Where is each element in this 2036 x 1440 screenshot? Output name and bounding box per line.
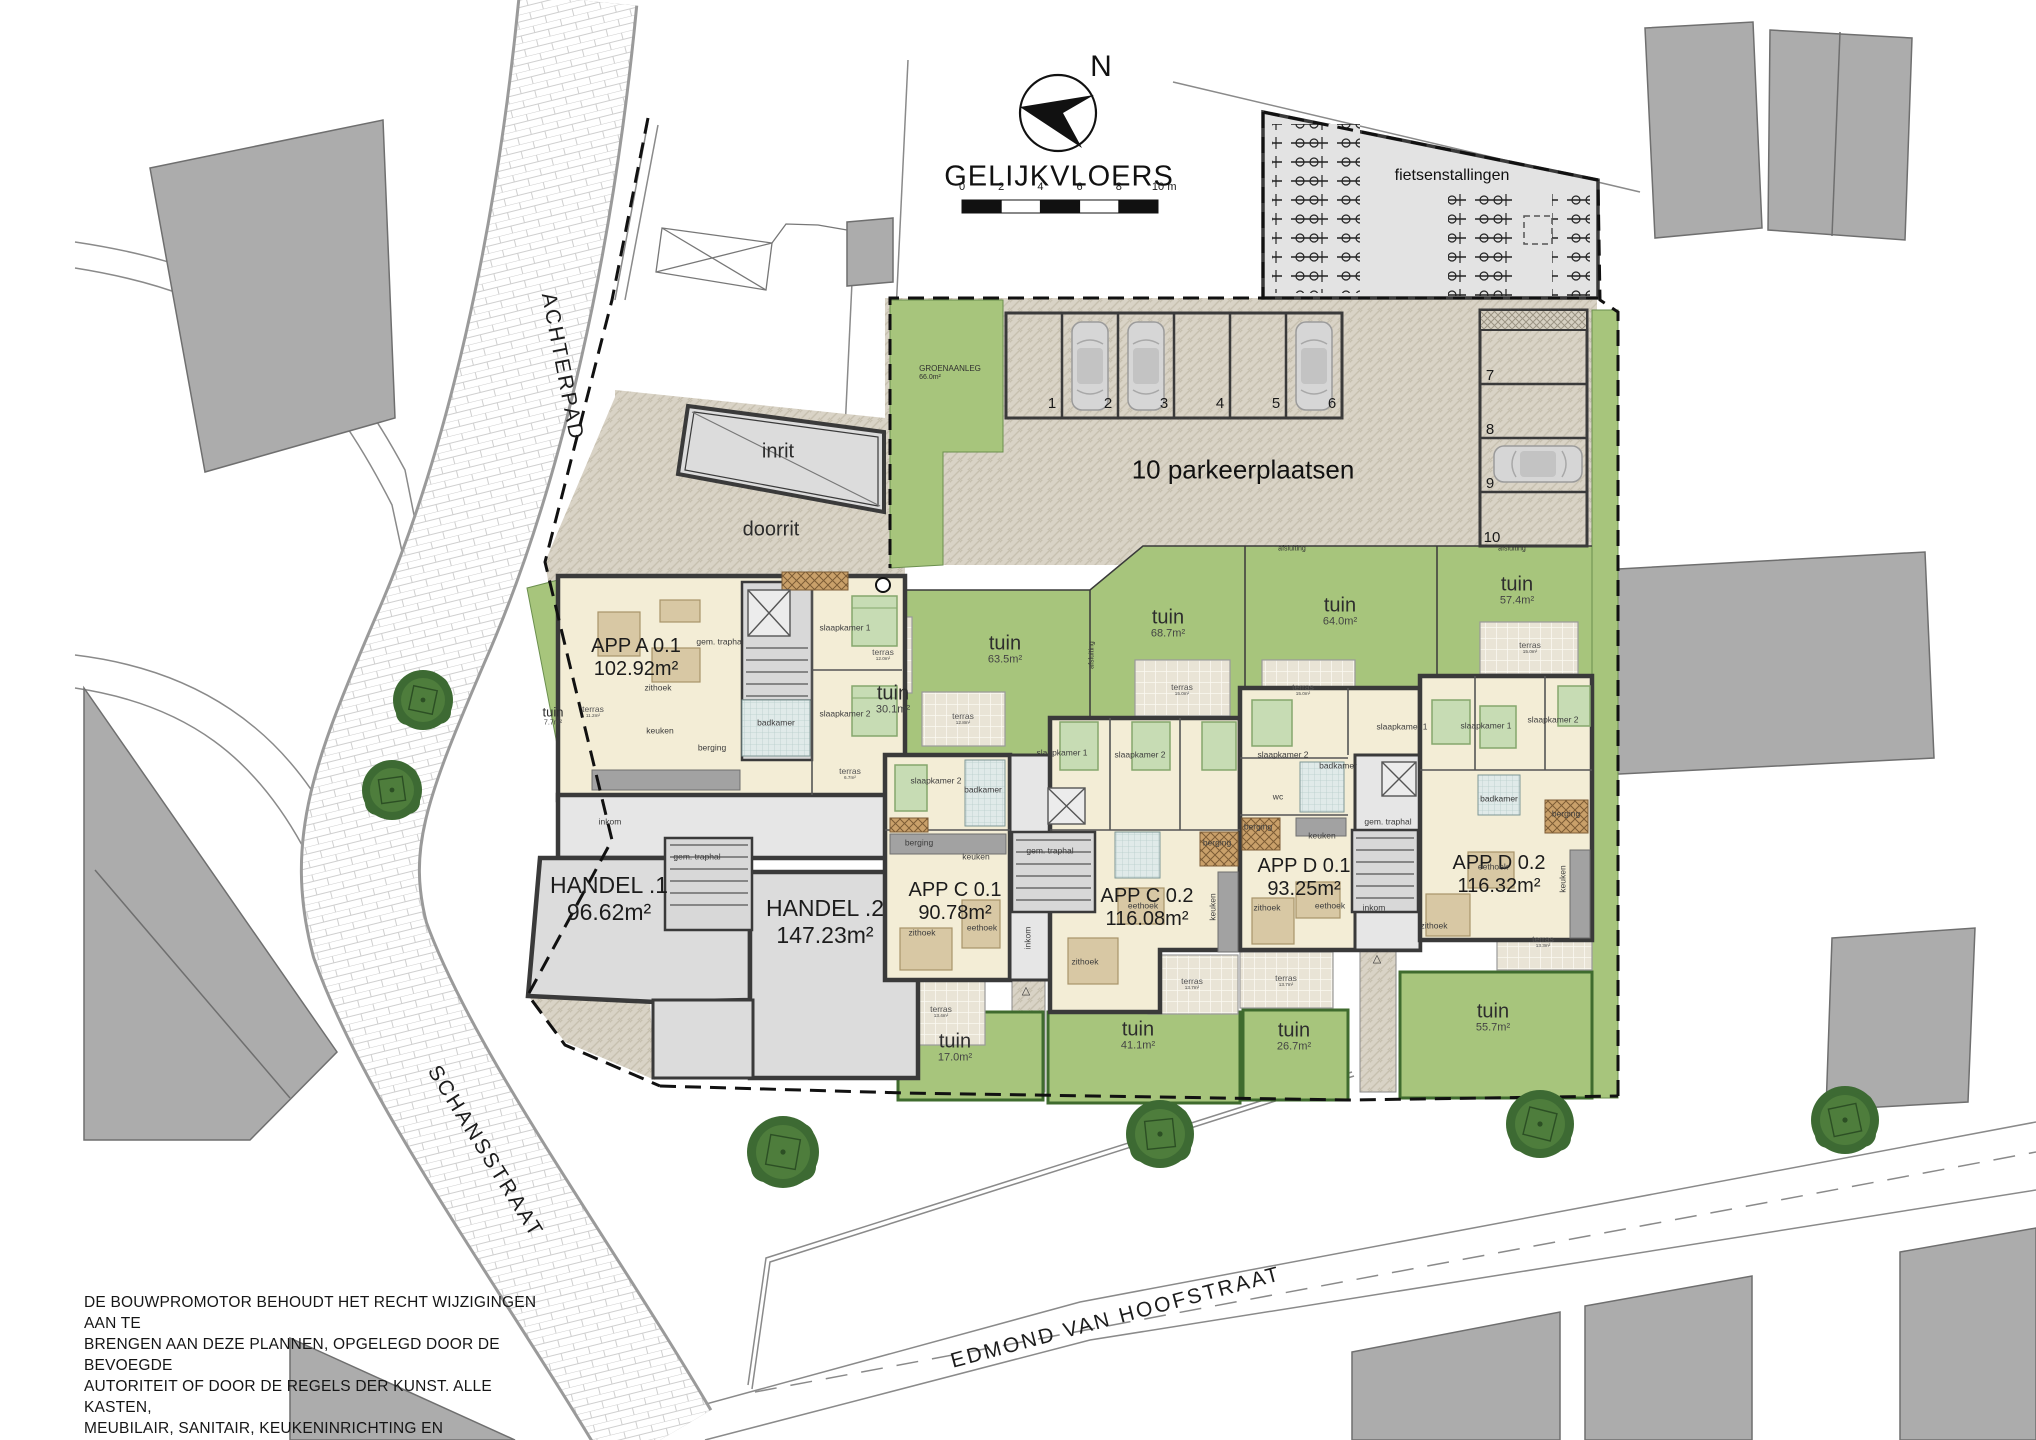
parking-row-1-6 [1006, 313, 1342, 418]
bike-rack-icons [1552, 188, 1590, 296]
site-plan-drawing [0, 0, 2036, 1440]
parking-row-7-10 [1480, 310, 1587, 546]
bike-storage-area [1263, 112, 1598, 298]
boundary-marker [876, 578, 890, 592]
floor-plan-page: GELIJKVLOERS N ACHTERPAD SCHANSSTRAAT ED… [0, 0, 2036, 1440]
bike-rack-icons [1272, 124, 1360, 293]
bike-rack-icons [1448, 188, 1516, 296]
scale-bar [962, 200, 1158, 213]
north-compass-icon [1020, 75, 1096, 151]
existing-structure-outlines [656, 224, 847, 290]
